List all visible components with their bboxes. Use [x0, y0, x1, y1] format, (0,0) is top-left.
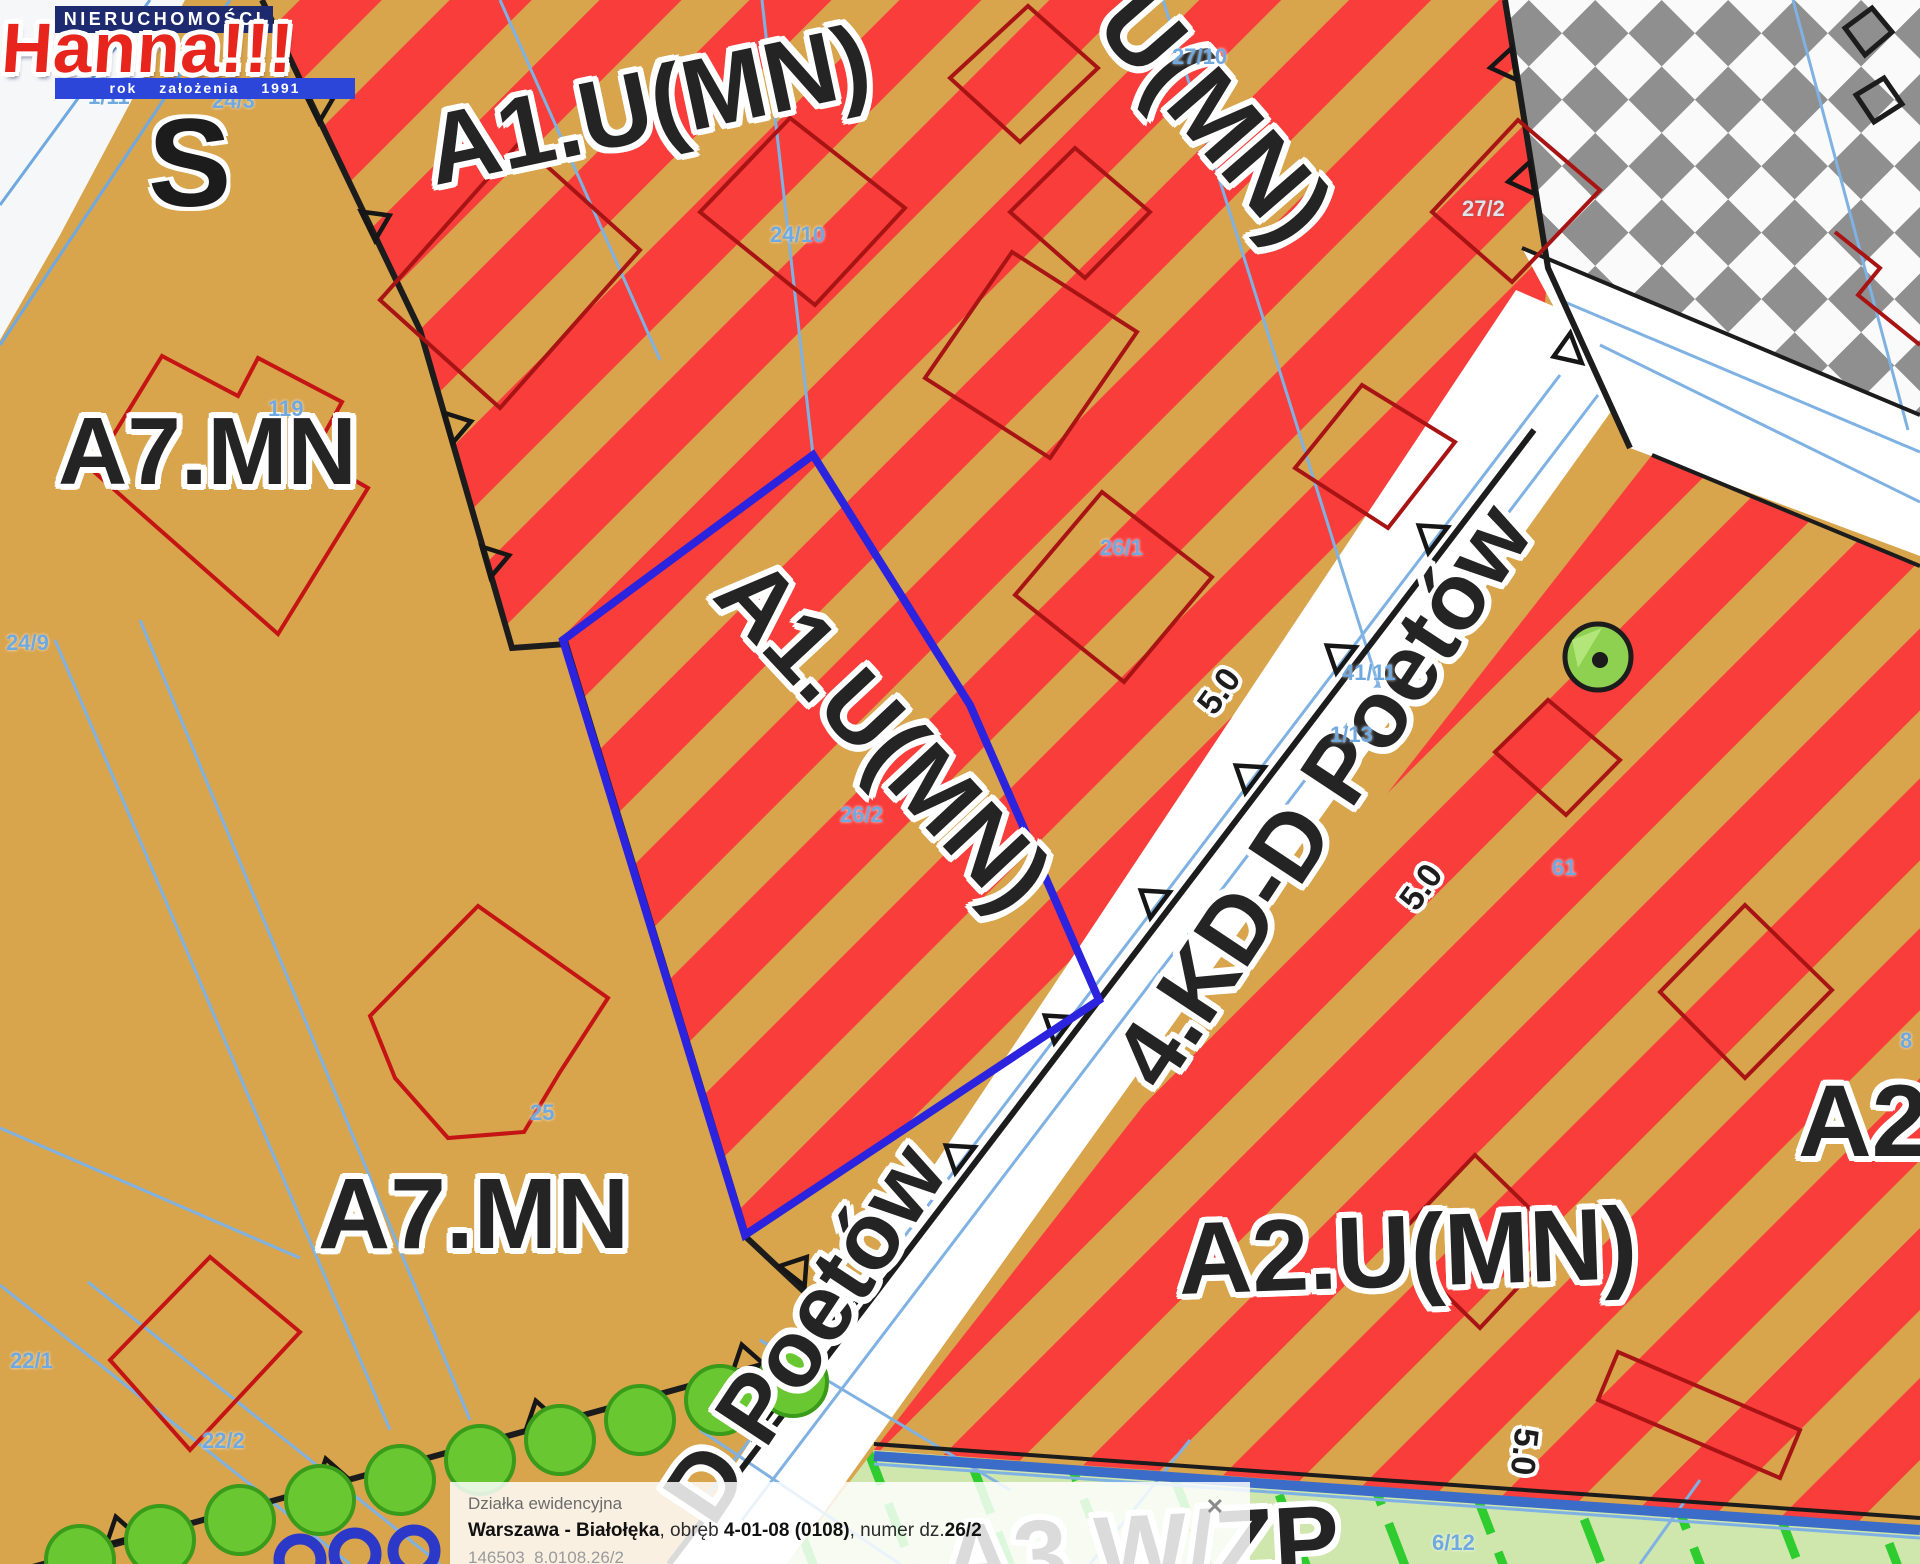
zone-label-a2-right: A2: [1798, 1068, 1920, 1175]
zone-label-a2-u-mn: A2.U(MN): [1176, 1190, 1638, 1313]
parcel-number: 27/2: [1462, 196, 1505, 222]
popup-parcel-line: Warszawa - Białołęka, obręb 4-01-08 (010…: [468, 1520, 1232, 1542]
parcel-number: 61: [1552, 855, 1576, 881]
parcel-number: 26/1: [1100, 535, 1143, 561]
parcel-number: 24/10: [770, 222, 825, 248]
zone-label-a7-mn-upper: A7.MN: [58, 402, 357, 503]
tree-symbol: [1565, 624, 1631, 690]
parcel-number: 119: [268, 396, 304, 422]
popup-meta-id: 146503 8.0108.26/2: [468, 1548, 1232, 1564]
popup-city: Warszawa - Białołęka: [468, 1520, 659, 1541]
parcel-number: 22/1: [10, 1348, 53, 1374]
logo-name: Hanna!!!: [0, 8, 297, 88]
parcel-number: 6/12: [1432, 1530, 1475, 1556]
road-label-fragment: S: [148, 92, 231, 235]
popup-obreb: 4-01-08 (0108): [724, 1520, 850, 1541]
zone-label-a7-mn-lower: A7.MN: [318, 1162, 629, 1267]
parcel-number: 24/9: [6, 630, 49, 656]
popup-parcel-number: 26/2: [945, 1520, 982, 1541]
popup-mid2: , numer dz.: [850, 1520, 945, 1541]
dim-label-5-0-c: 5.0: [1502, 1426, 1546, 1477]
parcel-number: 41/11: [1342, 660, 1396, 686]
close-icon[interactable]: ✕: [1206, 1494, 1224, 1520]
popup-title: Działka ewidencyjna: [468, 1494, 1232, 1514]
popup-mid1: , obręb: [659, 1520, 723, 1541]
agency-logo: NIERUCHOMOŚCI Hanna!!! rok założenia 199…: [0, 0, 372, 104]
parcel-number: 8: [1900, 1028, 1912, 1054]
logo-tagline-bar: rok założenia 1991: [55, 78, 355, 99]
zoning-map-viewport[interactable]: S A1.U(MN) U(MN) A7.MN A1.U(MN) A7.MN A2…: [0, 0, 1920, 1564]
parcel-number: 26/2: [840, 802, 883, 828]
parcel-number: 1/13: [1330, 722, 1373, 748]
parcel-number: 22/2: [202, 1428, 245, 1454]
parcel-number: 27/10: [1172, 44, 1227, 70]
parcel-number: 25: [530, 1100, 554, 1126]
parcel-info-popup: Działka ewidencyjna Warszawa - Białołęka…: [450, 1482, 1250, 1564]
